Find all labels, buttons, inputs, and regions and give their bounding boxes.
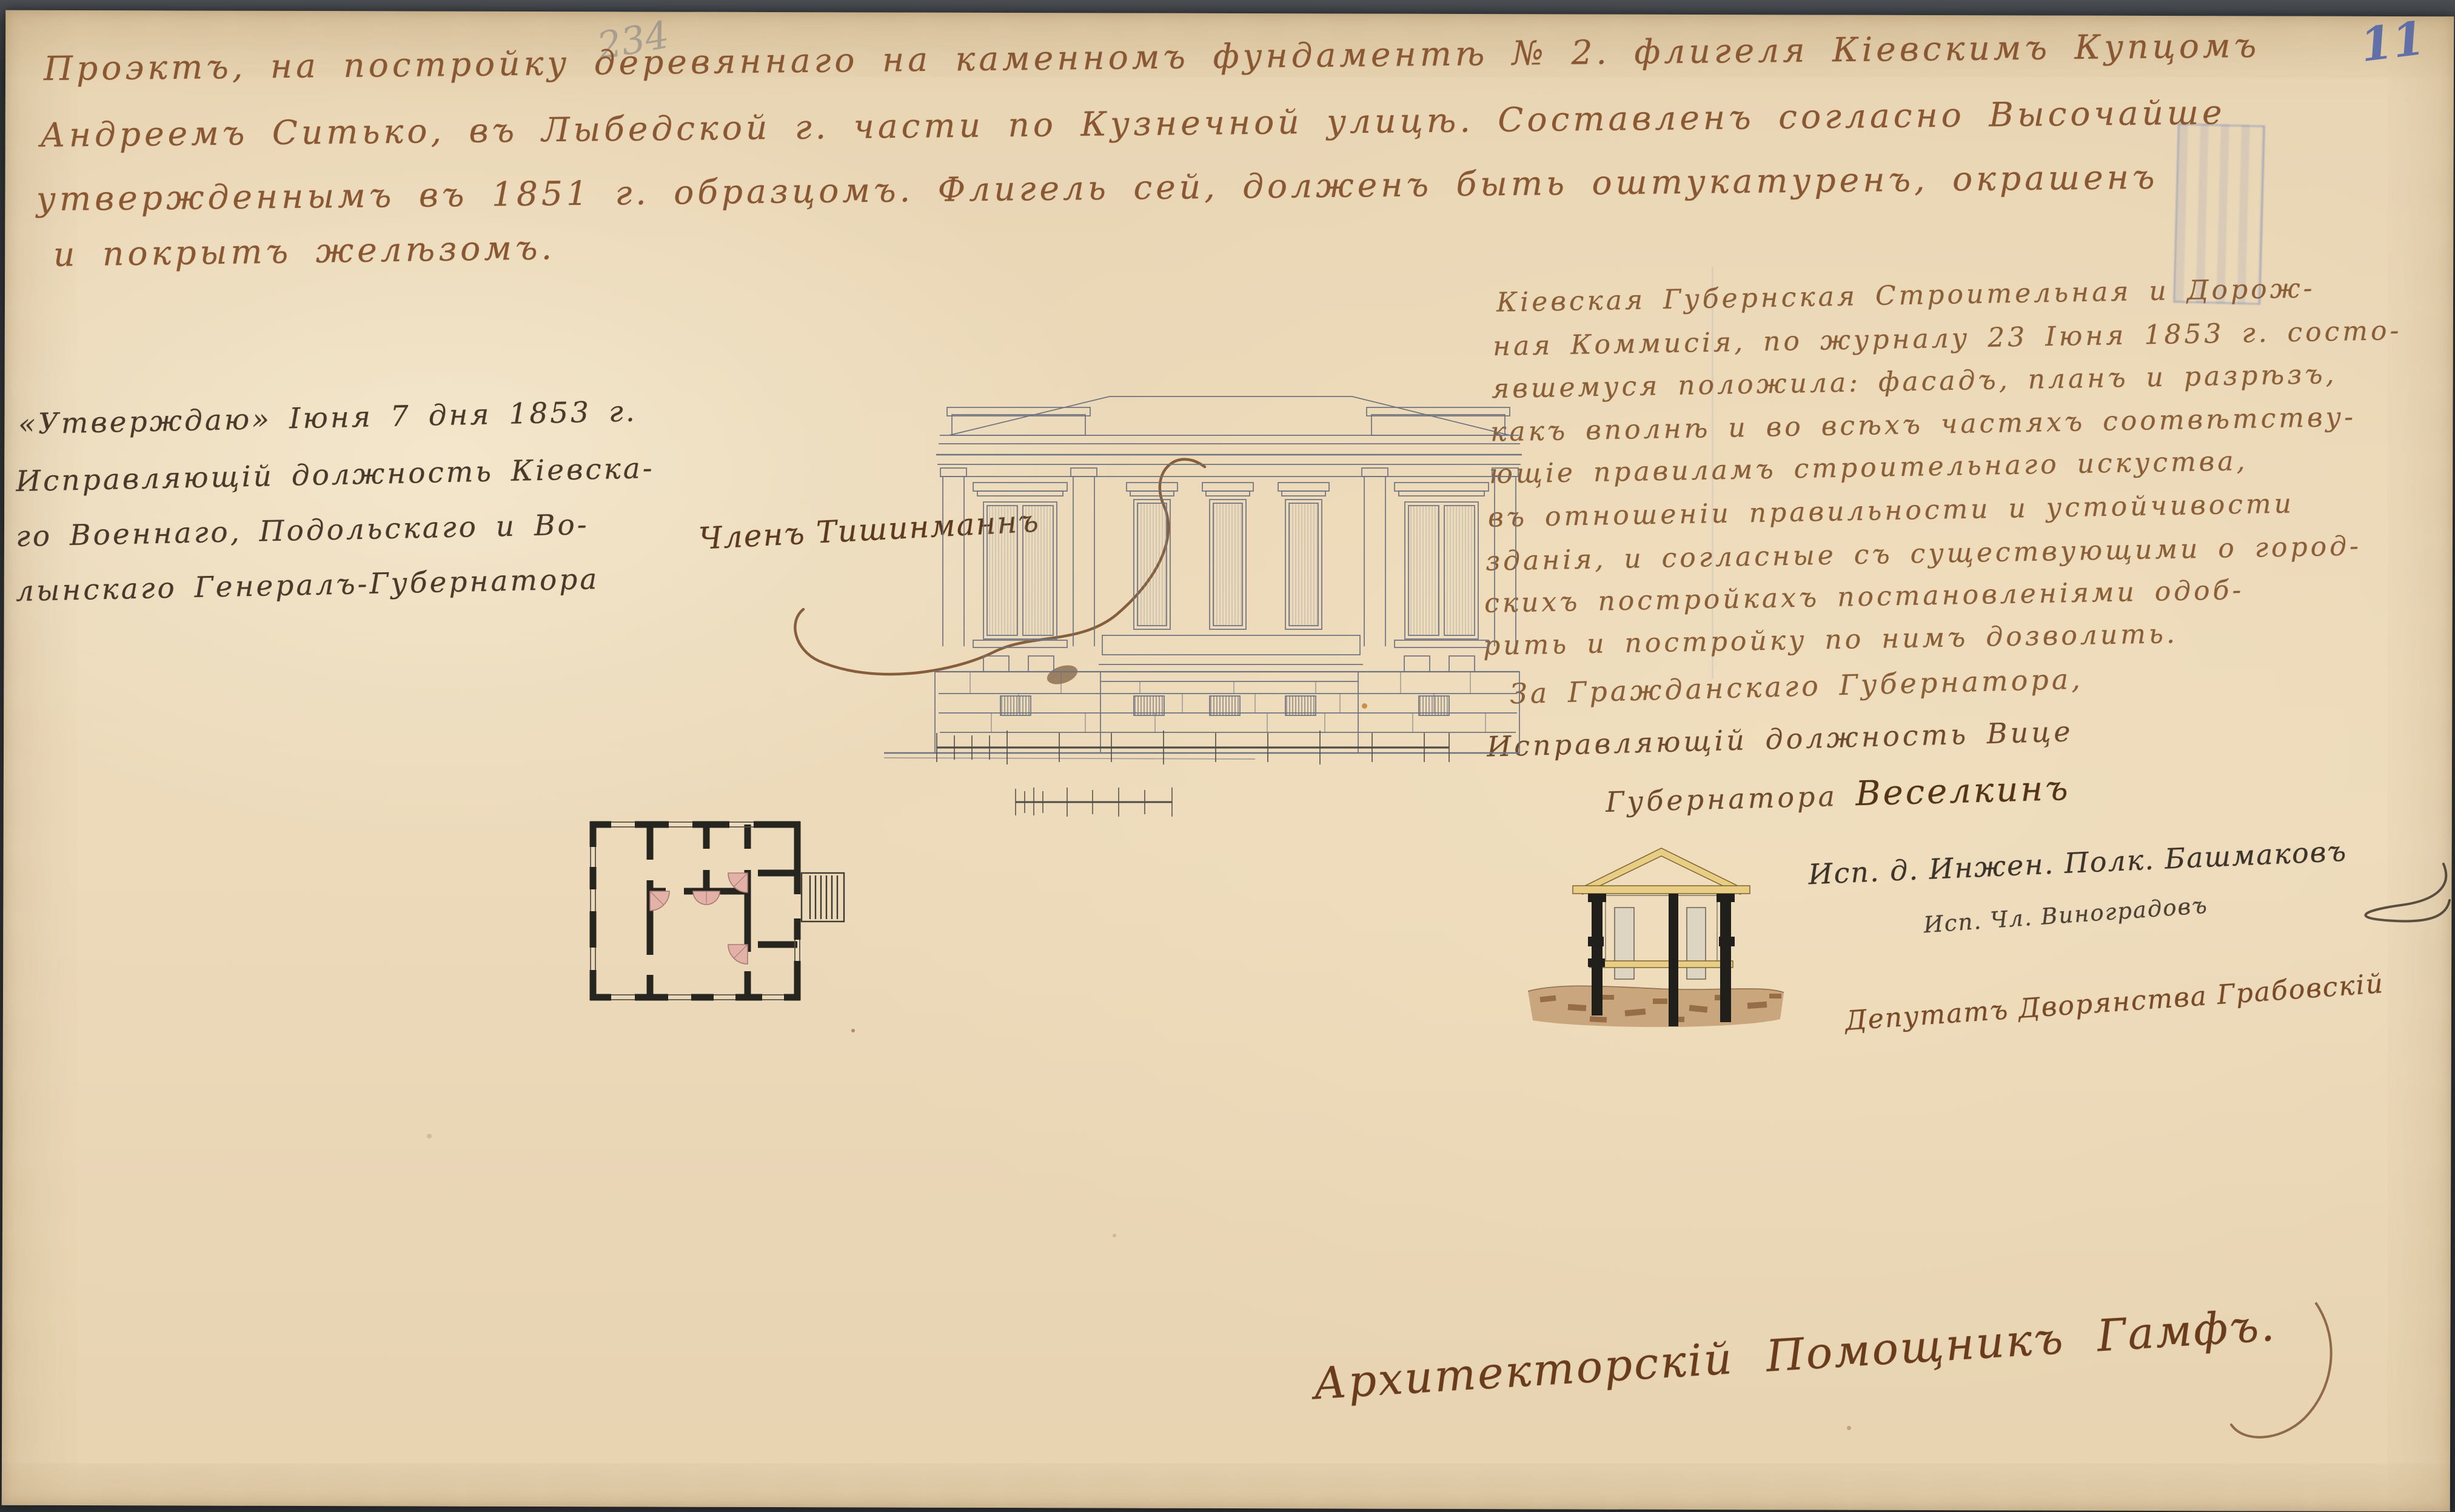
architect-flourish-icon	[2049, 1285, 2365, 1479]
ink-speck	[1847, 1426, 1851, 1430]
section-drawing	[1510, 840, 1801, 1040]
governor-signature: Веселкинъ	[1855, 769, 2071, 814]
elevation-drawing	[879, 361, 1522, 761]
ink-speck	[1362, 703, 1367, 709]
scan-background: 11 234 Проэктъ, на постройку деревяннаго…	[0, 0, 2455, 1512]
scale-bar-upper	[928, 724, 1461, 773]
title-line: и покрытъ желѣзомъ.	[53, 228, 556, 274]
scale-bar-lower	[928, 779, 1461, 828]
floor-plan-drawing	[582, 812, 855, 1012]
floor-beam	[1590, 961, 1733, 968]
ceiling-beam	[1573, 886, 1750, 894]
ink-speck	[851, 1029, 855, 1032]
engineer-flourish-icon	[2322, 858, 2455, 943]
ink-speck	[1113, 1234, 1116, 1237]
ink-speck	[427, 1134, 432, 1139]
earth-wash	[1528, 986, 1784, 1027]
governor-title: Губернатора	[1605, 780, 1838, 818]
page-number: 11	[2357, 11, 2428, 72]
